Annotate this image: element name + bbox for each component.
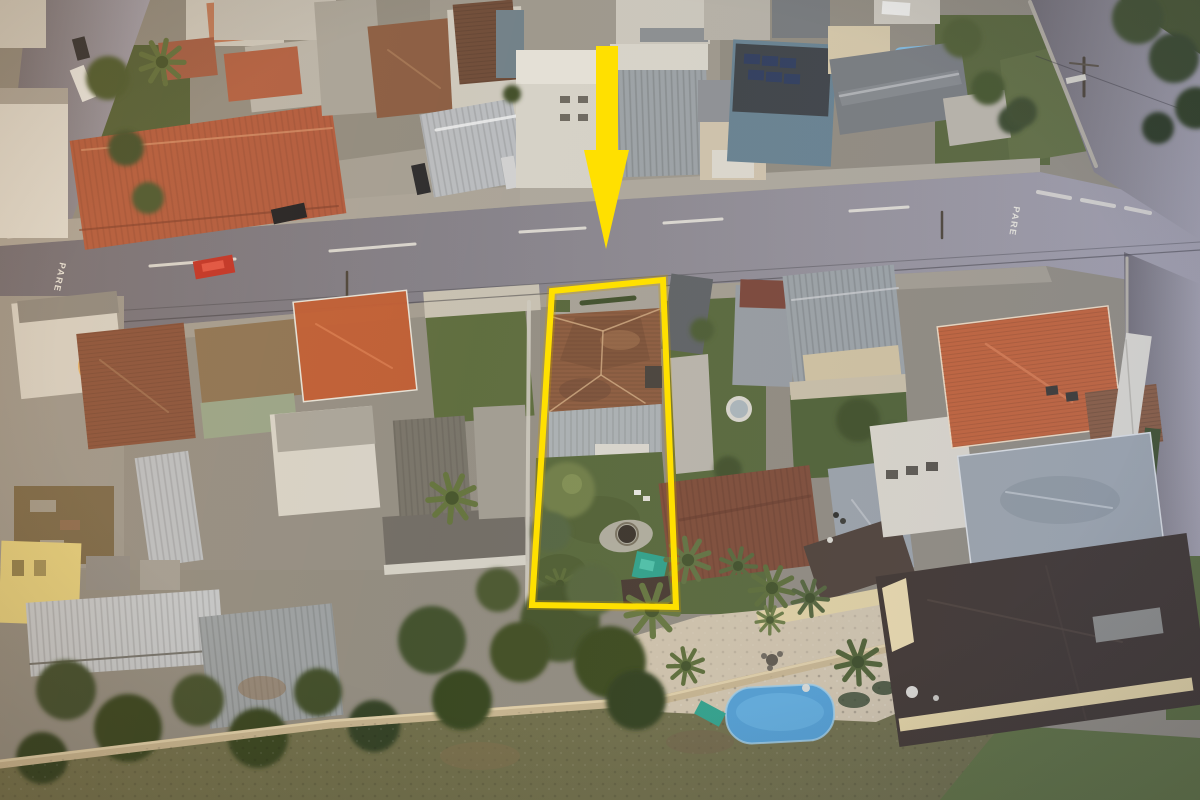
aerial-photo: PAREPARE — [0, 0, 1200, 800]
scene-svg: PAREPARE — [0, 0, 1200, 800]
